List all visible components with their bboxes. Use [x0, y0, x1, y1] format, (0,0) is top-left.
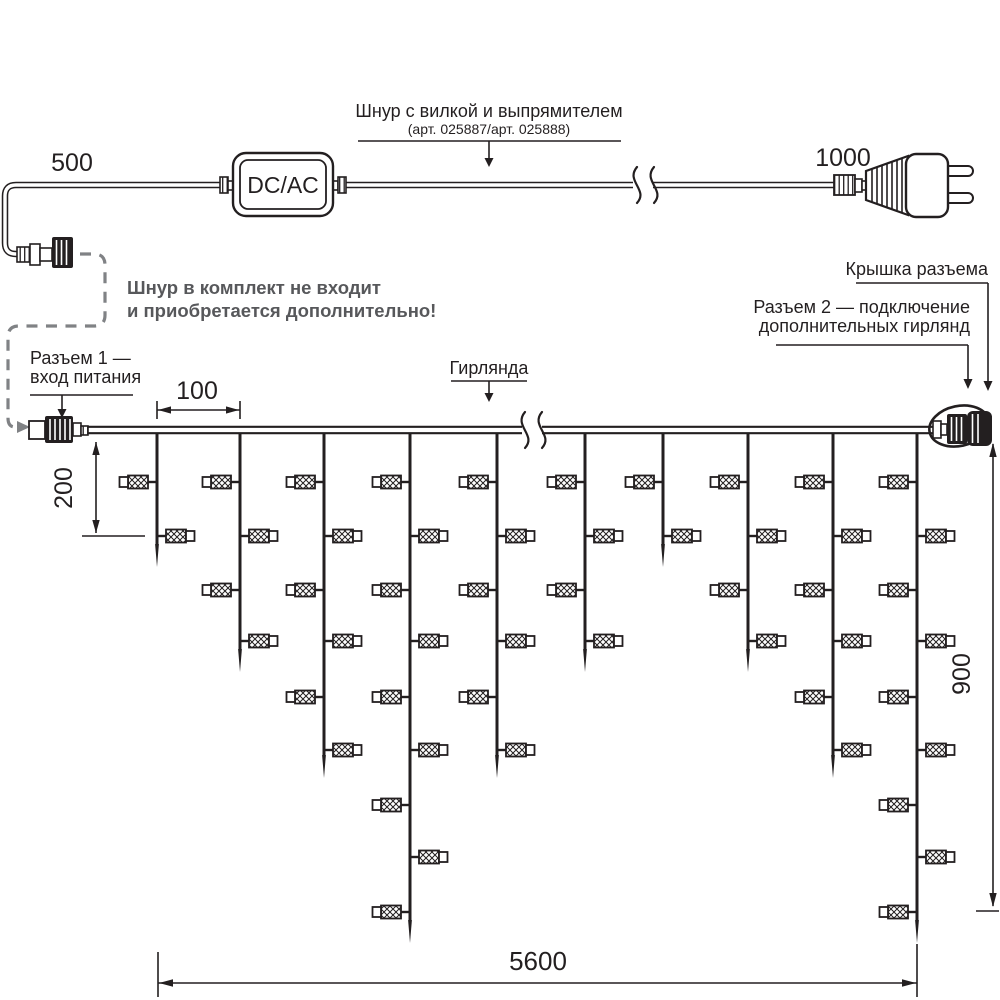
led-bulb: [917, 635, 955, 648]
dim-500-label: 500: [51, 149, 93, 177]
drop-4: [373, 434, 448, 943]
drop-6: [548, 434, 623, 672]
led-bulb: [833, 744, 871, 757]
led-bulb: [410, 851, 448, 864]
power-cord-assembly: [5, 185, 840, 254]
cord-callout-title: Шнур с вилкой и выпрямителем: [355, 101, 622, 121]
garland-callout: Гирлянда: [450, 358, 530, 402]
connector1-label-line2: вход питания: [30, 367, 141, 387]
led-bulb: [324, 635, 362, 648]
dashed-connection-path: [8, 254, 105, 433]
input-connector: [29, 416, 88, 443]
led-bulb: [203, 476, 241, 489]
led-bulb: [585, 635, 623, 648]
led-bulb: [410, 635, 448, 648]
led-bulb: [748, 530, 786, 543]
led-bulb: [373, 691, 411, 704]
garland-technical-diagram: DC/AC 500 1000 Шнур с вилкой и вы: [0, 0, 1000, 1000]
led-bulb: [711, 584, 749, 597]
drop-7: [626, 434, 701, 567]
led-bulb: [497, 744, 535, 757]
led-bulb: [240, 635, 278, 648]
dim-100: 100: [157, 377, 240, 419]
led-bulb: [373, 584, 411, 597]
note-line2: и приобретается дополнительно!: [127, 300, 436, 321]
led-bulb: [497, 530, 535, 543]
connector2-label-line2: дополнительных гирлянд: [759, 316, 971, 336]
drop-2: [203, 434, 278, 672]
diagram-page: DC/AC 500 1000 Шнур с вилкой и вы: [0, 0, 1000, 1000]
led-bulb: [410, 744, 448, 757]
led-bulb: [287, 691, 325, 704]
led-bulb: [748, 635, 786, 648]
dim-5600: 5600: [158, 944, 917, 997]
led-bulb: [917, 851, 955, 864]
drop-9: [796, 434, 871, 778]
connector1-label-line1: Разъем 1 —: [30, 348, 131, 368]
dim-900: 900: [948, 443, 999, 911]
led-bulb: [287, 476, 325, 489]
led-bulb: [880, 584, 918, 597]
cap-label: Крышка разъема: [846, 259, 989, 279]
led-bulb: [917, 744, 955, 757]
led-bulb: [410, 530, 448, 543]
dim-900-label: 900: [948, 653, 976, 695]
led-bulb: [497, 635, 535, 648]
garland-break-symbol: [522, 412, 546, 448]
dim-100-label: 100: [176, 377, 218, 405]
led-bulb: [460, 584, 498, 597]
drop-1: [120, 434, 195, 567]
led-bulb: [460, 691, 498, 704]
led-bulb: [663, 530, 701, 543]
cord-callout-art: (арт. 025887/арт. 025888): [408, 121, 570, 137]
led-bulb: [120, 476, 158, 489]
drop-3: [287, 434, 362, 778]
led-bulb: [240, 530, 278, 543]
drop-5: [460, 434, 535, 778]
led-bulb: [711, 476, 749, 489]
led-bulb: [626, 476, 664, 489]
led-bulb: [917, 530, 955, 543]
led-bulb: [548, 476, 586, 489]
connector2-label-line1: Разъем 2 — подключение: [753, 297, 970, 317]
dim-200-label: 200: [50, 467, 78, 509]
note-line1: Шнур в комплект не входит: [127, 277, 381, 298]
led-bulb: [373, 906, 411, 919]
led-bulb: [880, 799, 918, 812]
led-bulb: [880, 476, 918, 489]
drop-10: [880, 434, 955, 943]
spare-cord-connector: [17, 237, 73, 268]
dim-1000-label: 1000: [815, 144, 871, 172]
note: Шнур в комплект не входит и приобретаетс…: [127, 277, 436, 321]
led-bulb: [287, 584, 325, 597]
led-bulb: [833, 635, 871, 648]
led-bulb: [796, 584, 834, 597]
connector2-callout: Разъем 2 — подключение дополнительных ги…: [753, 297, 972, 389]
dashed-arrow-head: [17, 421, 30, 433]
dcac-converter: DC/AC: [220, 153, 346, 216]
led-bulb: [460, 476, 498, 489]
garland-drops: [120, 434, 955, 943]
led-bulb: [203, 584, 241, 597]
led-bulb: [880, 906, 918, 919]
dim-5600-label: 5600: [509, 946, 567, 976]
led-bulb: [157, 530, 195, 543]
led-bulb: [585, 530, 623, 543]
led-bulb: [833, 530, 871, 543]
led-bulb: [373, 799, 411, 812]
cord-callout: Шнур с вилкой и выпрямителем (арт. 02588…: [355, 101, 622, 167]
cord-break-symbol: [633, 167, 657, 203]
led-bulb: [373, 476, 411, 489]
led-bulb: [880, 691, 918, 704]
dcac-label: DC/AC: [247, 172, 319, 198]
drop-8: [711, 434, 786, 672]
led-bulb: [324, 530, 362, 543]
led-bulb: [548, 584, 586, 597]
led-bulb: [324, 744, 362, 757]
led-bulb: [796, 691, 834, 704]
led-bulb: [796, 476, 834, 489]
garland-label: Гирлянда: [450, 358, 530, 378]
end-connector: [925, 400, 992, 452]
input-connector-callout: Разъем 1 — вход питания: [30, 348, 141, 418]
